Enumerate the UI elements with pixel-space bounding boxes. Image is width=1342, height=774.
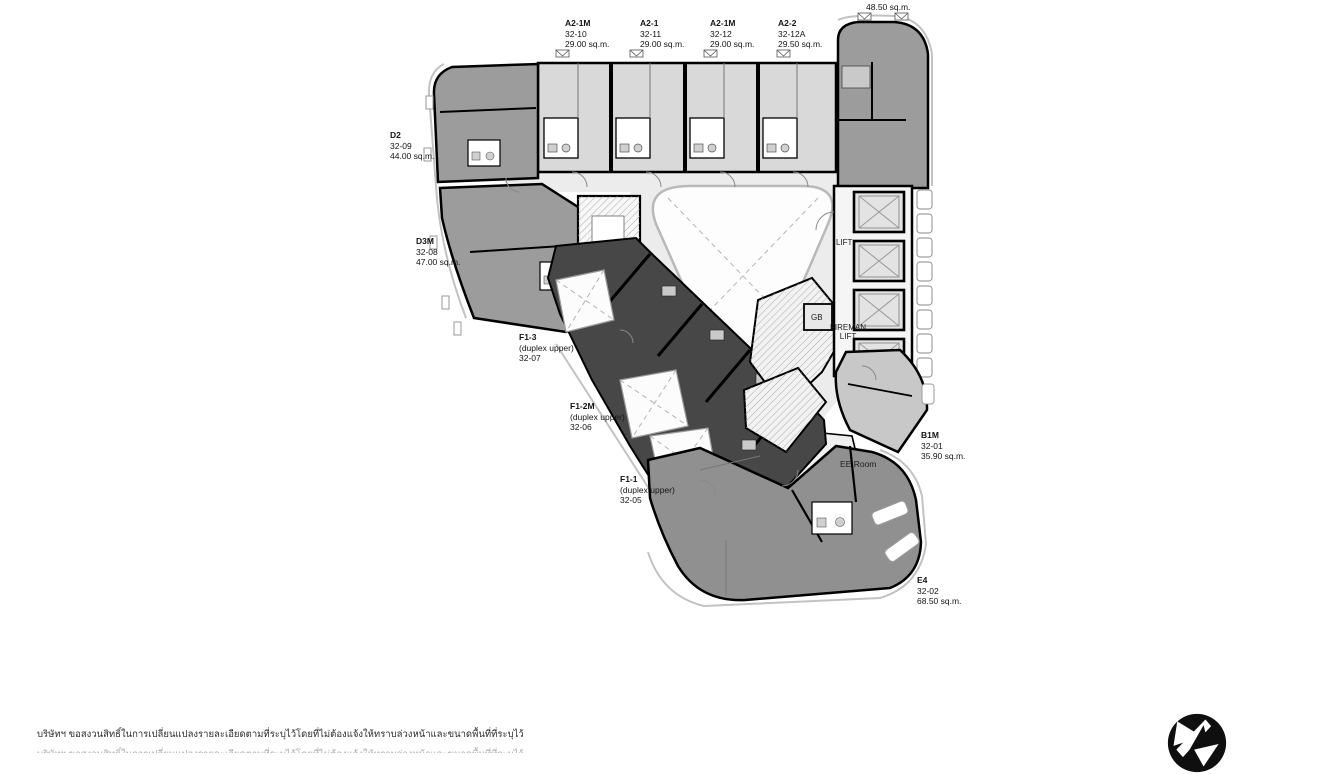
unit-label-b1m: B1M 32-01 35.90 sq.m. xyxy=(921,430,965,462)
unit-name: D2 xyxy=(390,130,434,141)
fireman-lift-line1: FIREMAN xyxy=(822,323,874,332)
unit-label-a2-1-32-11: A2-1 32-11 29.00 sq.m. xyxy=(640,18,684,50)
gb-label: GB xyxy=(811,313,823,322)
thai-disclaimer: บริษัทฯ ขอสงวนสิทธิ์ในการเปลี่ยนแปลงรายล… xyxy=(37,727,524,742)
floor-plan-drawing xyxy=(0,0,1342,754)
right-balcony-strip xyxy=(917,190,932,377)
top-units-strip xyxy=(538,50,836,172)
unit-label-a2-2-32-12a: A2-2 32-12A 29.50 sq.m. xyxy=(778,18,822,50)
unit-name: D3M xyxy=(416,236,460,247)
unit-label-d3m: D3M 32-08 47.00 sq.m. xyxy=(416,236,460,268)
unit-area: 47.00 sq.m. xyxy=(416,257,460,268)
unit-id: 32-12 xyxy=(710,29,754,40)
unit-id: 32-08 xyxy=(416,247,460,258)
unit-name: A2-1M xyxy=(565,18,609,29)
fireman-lift-label: FIREMAN LIFT xyxy=(822,323,874,341)
unit-type: (duplex upper) xyxy=(620,485,675,496)
unit-name: B1M xyxy=(921,430,965,441)
unit-area: 68.50 sq.m. xyxy=(917,596,961,607)
unit-id: 32-02 xyxy=(917,586,961,597)
unit-type: (duplex upper) xyxy=(519,343,574,354)
unit-id: 32-07 xyxy=(519,353,574,364)
unit-id: 32-10 xyxy=(565,29,609,40)
unit-name: F1-2M xyxy=(570,401,625,412)
unit-id: 32-11 xyxy=(640,29,684,40)
unit-name: F1-1 xyxy=(620,474,675,485)
unit-name: E4 xyxy=(917,575,961,586)
unit-id: 32-01 xyxy=(921,441,965,452)
unit-area: 29.00 sq.m. xyxy=(640,39,684,50)
unit-id: 32-05 xyxy=(620,495,675,506)
fireman-lift-line2: LIFT xyxy=(822,332,874,341)
unit-label-f1-1: F1-1 (duplex upper) 32-05 xyxy=(620,474,675,506)
brand-logo xyxy=(1166,712,1228,774)
unit-label-e4: E4 32-02 68.50 sq.m. xyxy=(917,575,961,607)
unit-label-d2: D2 32-09 44.00 sq.m. xyxy=(390,130,434,162)
unit-area: 29.00 sq.m. xyxy=(565,39,609,50)
lift-shaft xyxy=(854,192,904,232)
unit-d2 xyxy=(434,64,538,182)
unit-name: A2-2 xyxy=(778,18,822,29)
unit-id: 32-12A xyxy=(778,29,822,40)
unit-name: A2-1 xyxy=(640,18,684,29)
unit-32-14 xyxy=(838,13,928,188)
floor-plan-page: { "colors": { "light_unit": "#d9d9d9", "… xyxy=(0,0,1342,754)
thai-disclaimer-cut-line: บริษัทฯ ขอสงวนสิทธิ์ในการเปลี่ยนแปลงรายล… xyxy=(37,747,524,753)
lift-shaft xyxy=(854,241,904,281)
unit-name: F1-3 xyxy=(519,332,574,343)
unit-area: 29.50 sq.m. xyxy=(778,39,822,50)
unit-area: 44.00 sq.m. xyxy=(390,151,434,162)
unit-label-f1-2m: F1-2M (duplex upper) 32-06 xyxy=(570,401,625,433)
unit-name: A2-1M xyxy=(710,18,754,29)
unit-label-a2-1m-32-10: A2-1M 32-10 29.00 sq.m. xyxy=(565,18,609,50)
unit-label-32-14-cut: 32-14 48.50 sq.m. xyxy=(866,0,910,12)
unit-area: 35.90 sq.m. xyxy=(921,451,965,462)
unit-area: 29.00 sq.m. xyxy=(710,39,754,50)
unit-id: 32-06 xyxy=(570,422,625,433)
unit-label-f1-3: F1-3 (duplex upper) 32-07 xyxy=(519,332,574,364)
unit-id: 32-09 xyxy=(390,141,434,152)
lift-label: LIFT xyxy=(836,238,852,247)
unit-label-a2-1m-32-12: A2-1M 32-12 29.00 sq.m. xyxy=(710,18,754,50)
unit-type: (duplex upper) xyxy=(570,412,625,423)
unit-area: 48.50 sq.m. xyxy=(866,2,910,13)
ee-room-label: EE Room xyxy=(840,460,876,469)
